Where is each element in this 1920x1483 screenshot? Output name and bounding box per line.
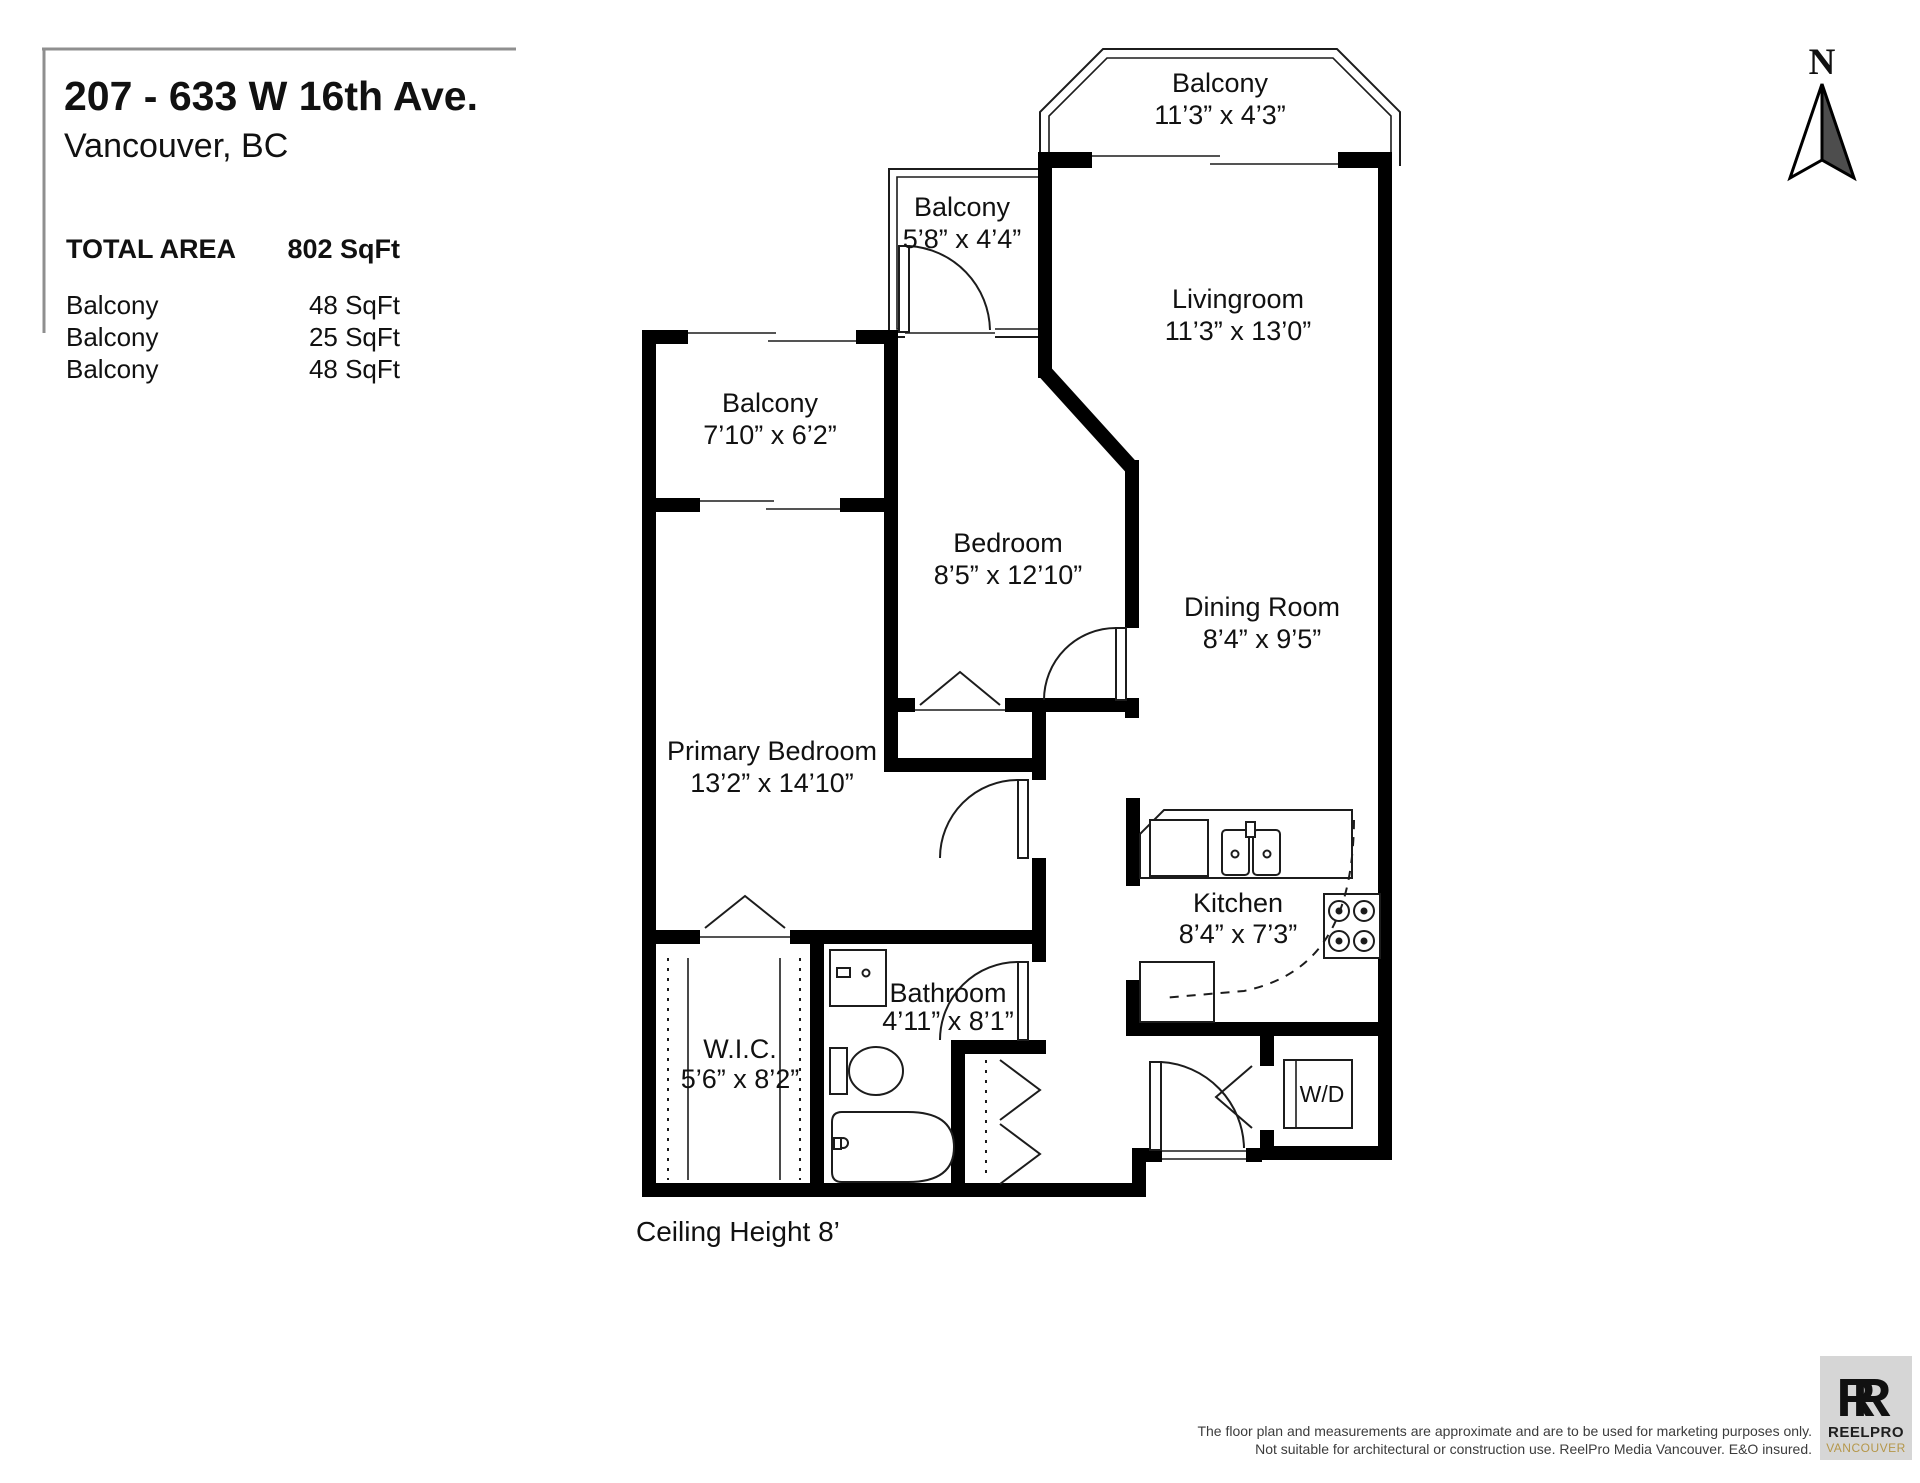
footer: The floor plan and measurements are appr…	[1197, 1356, 1912, 1460]
wall-balcony-west-top-stub	[642, 330, 688, 344]
logo-monogram-black: R	[1853, 1368, 1892, 1428]
room-dims-balcony-west: 7’10” x 6’2”	[703, 420, 837, 450]
bifold-door-marker-wd-closet	[1216, 1066, 1252, 1128]
area-row-label: Balcony	[66, 290, 159, 320]
room-dims-bathroom: 4’11” x 8’1”	[882, 1006, 1014, 1036]
room-dims-livingroom: 11’3” x 13’0”	[1165, 316, 1312, 346]
wall-hall-west	[1032, 858, 1046, 962]
room-dims-balcony-upper: 5’8” x 4’4”	[903, 224, 1022, 254]
sink-faucet	[837, 968, 850, 977]
ceiling-height-note: Ceiling Height 8’	[636, 1216, 840, 1247]
wall-bedroom-south	[898, 698, 915, 712]
wall-bedroom-west	[884, 330, 898, 772]
area-total-value: 802 SqFt	[287, 234, 400, 264]
floorplan-svg: 207 - 633 W 16th Ave. Vancouver, BC TOTA…	[0, 0, 1920, 1483]
stove-burner-center	[1361, 908, 1368, 915]
bathtub-spout	[834, 1138, 841, 1149]
room-label-bedroom: Bedroom	[953, 528, 1063, 558]
window-balcony-west-top	[688, 330, 856, 344]
wall-wic-bathroom-divider	[810, 944, 824, 1190]
area-row-label: Balcony	[66, 354, 159, 384]
logo-city: VANCOUVER	[1826, 1441, 1906, 1455]
room-dims-wic: 5’6” x 8’2”	[681, 1064, 800, 1094]
area-table: TOTAL AREA 802 SqFt Balcony 48 SqFt Balc…	[66, 234, 401, 384]
room-label-balcony-top: Balcony	[1172, 68, 1269, 98]
north-arrow-right-half	[1822, 84, 1854, 178]
room-label-kitchen: Kitchen	[1193, 888, 1283, 918]
north-arrow: N	[1790, 42, 1854, 178]
kitchen-sink-faucet	[1246, 822, 1255, 837]
wall-primary-south	[790, 930, 1046, 944]
room-dims-primary: 13’2” x 14’10”	[690, 768, 854, 798]
wall-bathroom-south-partial	[951, 1040, 1046, 1054]
wall-wd-south	[1260, 1146, 1392, 1160]
area-row-value: 48 SqFt	[309, 354, 401, 384]
kitchen-cabinet	[1150, 820, 1208, 876]
wall-kitchen-west-stub	[1126, 798, 1140, 886]
door-leaf-bathroom	[1018, 962, 1028, 1040]
room-label-wic: W.I.C.	[703, 1034, 777, 1064]
logo-name: REELPRO	[1828, 1424, 1904, 1441]
stove-burner-center	[1336, 938, 1343, 945]
disclaimer-line2: Not suitable for architectural or constr…	[1255, 1441, 1812, 1457]
bathtub	[832, 1112, 954, 1182]
wall-living-west-upper	[1038, 152, 1052, 378]
floorplan-page: 207 - 633 W 16th Ave. Vancouver, BC TOTA…	[0, 0, 1920, 1483]
room-dims-dining: 8’4” x 9’5”	[1203, 624, 1322, 654]
laundry: W/D	[1284, 1060, 1352, 1128]
wall-entry-threshold	[1246, 1148, 1262, 1162]
toilet-tank	[830, 1048, 847, 1094]
room-label-primary: Primary Bedroom	[667, 736, 877, 766]
door-arc-bedroom	[1044, 628, 1116, 700]
wall-primary-south	[656, 930, 700, 944]
room-dims-kitchen: 8’4” x 7’3”	[1179, 919, 1298, 949]
area-total-label: TOTAL AREA	[66, 234, 236, 264]
room-dims-balcony-top: 11’3” x 4’3”	[1154, 100, 1286, 130]
door-leaf-bedroom	[1116, 628, 1126, 700]
address-line2: Vancouver, BC	[64, 127, 288, 165]
wall-hall-west	[1032, 712, 1046, 780]
closet-door-marker-wic	[705, 896, 785, 928]
wall-living-north-stub	[1338, 152, 1392, 168]
reelpro-logo: R R REELPRO VANCOUVER	[1820, 1356, 1912, 1460]
door-arc-primary	[940, 780, 1018, 858]
sink-drain	[863, 970, 870, 977]
door-leaf-primary	[1018, 780, 1028, 858]
room-label-balcony-upper: Balcony	[914, 192, 1011, 222]
wall-east	[1378, 152, 1392, 1160]
door-arc-balcony-upper	[909, 246, 990, 330]
room-label-bathroom: Bathroom	[889, 978, 1006, 1008]
bifold-door-marker-entry-closet	[1000, 1060, 1040, 1120]
kitchen-counter-lower	[1140, 962, 1214, 1022]
window-living-north	[1092, 152, 1338, 168]
wall-west	[642, 330, 656, 1197]
room-label-balcony-west: Balcony	[722, 388, 819, 418]
room-label-dining: Dining Room	[1184, 592, 1340, 622]
washer-dryer-label: W/D	[1300, 1081, 1345, 1107]
bifold-door-marker-entry-closet	[1000, 1124, 1040, 1184]
wall-bedroom-closet-south	[898, 758, 1032, 772]
room-dims-bedroom: 8’5” x 12’10”	[934, 560, 1083, 590]
toilet-bowl	[849, 1047, 903, 1095]
area-row-label: Balcony	[66, 322, 159, 352]
north-label: N	[1809, 42, 1836, 83]
wall-wd-west-stub	[1260, 1036, 1274, 1066]
door-leaf-entry	[1150, 1062, 1161, 1150]
stove-burner-center	[1361, 938, 1368, 945]
sink-drain	[1264, 851, 1271, 858]
north-arrow-left-half	[1790, 84, 1822, 178]
area-row-value: 25 SqFt	[309, 322, 401, 352]
wall-dining-west	[1125, 460, 1139, 628]
wall-balcony-west-bottom-stub	[642, 498, 700, 512]
door-arc-entry	[1161, 1062, 1244, 1148]
wall-diagonal	[1045, 372, 1132, 468]
sink-drain	[1232, 851, 1239, 858]
wall-south	[642, 1183, 1146, 1197]
wall-wd-west-stub	[1260, 1130, 1274, 1160]
area-row-value: 48 SqFt	[309, 290, 401, 320]
door-leaf-balcony-upper	[899, 246, 909, 332]
wall-bathroom-closet-divider	[951, 1054, 965, 1183]
closet-door-marker-bedroom	[920, 672, 1000, 705]
window-balcony-west-bottom	[700, 498, 840, 512]
address-line1: 207 - 633 W 16th Ave.	[64, 73, 478, 119]
room-label-livingroom: Livingroom	[1172, 284, 1304, 314]
wall-entry-jog	[1132, 1148, 1146, 1197]
disclaimer-line1: The floor plan and measurements are appr…	[1197, 1423, 1812, 1439]
wall-kitchen-south	[1126, 1022, 1392, 1036]
